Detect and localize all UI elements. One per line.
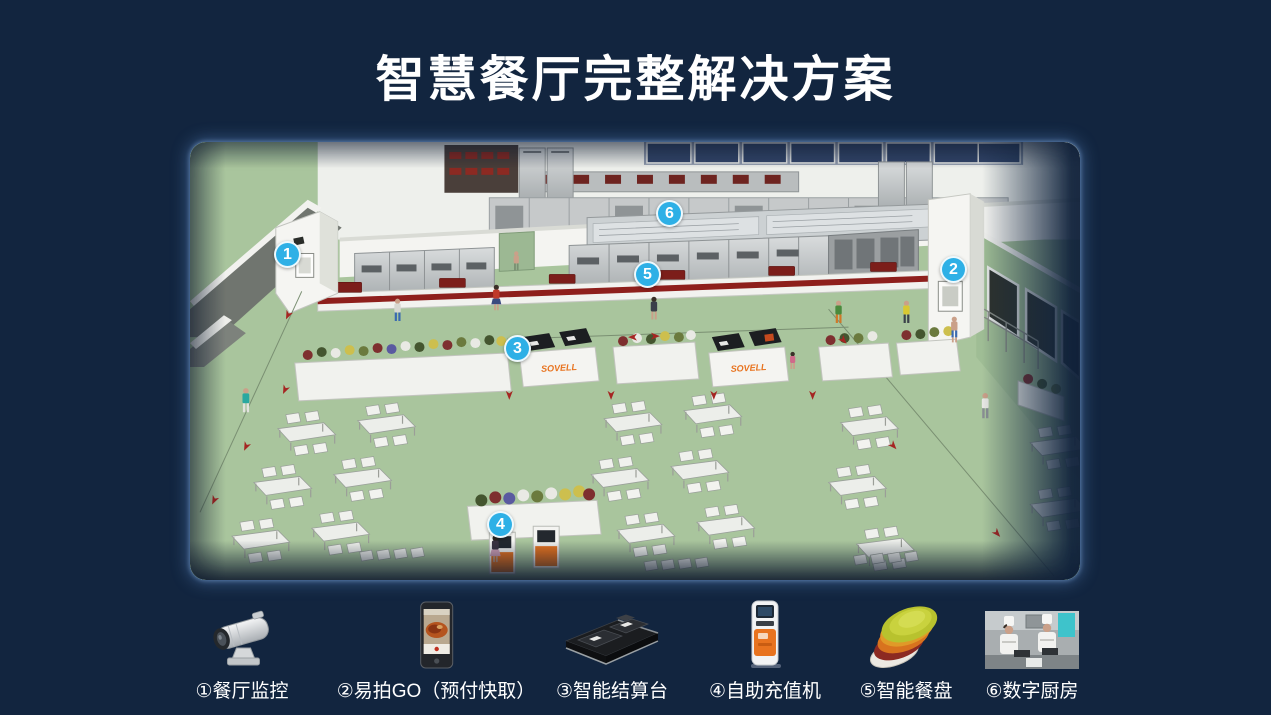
scene-marker-6: 6 <box>656 200 683 227</box>
scene-marker-3: 3 <box>504 335 531 362</box>
legend-item-restaurant-monitoring: ①餐厅监控 <box>195 598 288 703</box>
marker-number: 5 <box>643 266 652 284</box>
cctv-camera-icon <box>200 598 284 670</box>
legend-label: ④自助充值机 <box>709 676 821 703</box>
digital-kitchen-icon <box>984 598 1080 670</box>
sovell-brand-label: SOVELL <box>730 362 766 374</box>
marker-number: 3 <box>513 340 522 358</box>
legend-item-smart-plates: ⑤智能餐盘 <box>859 598 952 703</box>
legend-item-easypick-go: ②易拍GO（预付快取） <box>337 598 536 703</box>
restaurant-3d-render: SOVELL SOVELL <box>190 142 1080 580</box>
checkout-terminal-icon <box>556 598 668 670</box>
legend-label: ⑤智能餐盘 <box>859 676 952 703</box>
marker-number: 6 <box>665 205 674 223</box>
scene-marker-2: 2 <box>940 256 967 283</box>
marker-number: 2 <box>949 261 958 279</box>
marker-number: 4 <box>496 516 505 534</box>
sovell-brand-label: SOVELL <box>541 362 577 374</box>
legend-label: ①餐厅监控 <box>195 676 288 703</box>
legend-item-digital-kitchen: ⑥数字厨房 <box>984 598 1080 703</box>
recharge-kiosk-icon <box>734 598 796 670</box>
restaurant-3d-scene: SOVELL SOVELL <box>190 142 1080 580</box>
smart-plates-icon <box>860 598 952 670</box>
scene-marker-4: 4 <box>487 511 514 538</box>
marker-number: 1 <box>283 246 292 264</box>
legend-label: ③智能结算台 <box>556 676 668 703</box>
page-title: 智慧餐厅完整解决方案 <box>0 40 1271 111</box>
legend-label: ②易拍GO（预付快取） <box>337 676 536 703</box>
scene-marker-5: 5 <box>634 261 661 288</box>
legend-item-smart-checkout: ③智能结算台 <box>556 598 668 703</box>
smartphone-icon <box>411 598 461 670</box>
legend-label: ⑥数字厨房 <box>985 676 1078 703</box>
legend-strip: ①餐厅监控 ②易拍GO（预付快取） <box>0 598 1271 708</box>
legend-item-recharge-kiosk: ④自助充值机 <box>709 598 821 703</box>
scene-marker-1: 1 <box>274 241 301 268</box>
